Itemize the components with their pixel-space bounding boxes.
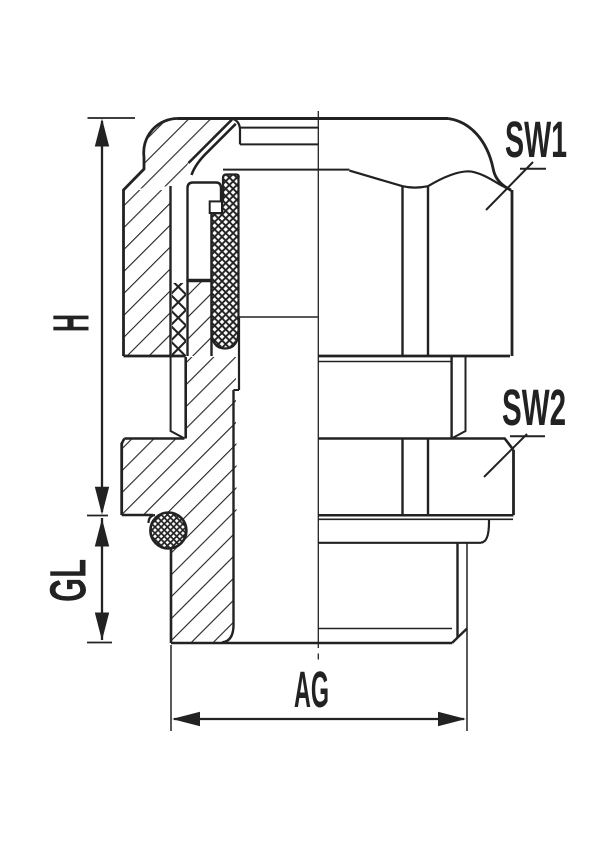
svg-text:H: H [43,314,100,332]
svg-text:SW1: SW1 [505,111,567,168]
svg-text:SW2: SW2 [502,379,566,436]
svg-text:GL: GL [40,559,97,602]
svg-text:AG: AG [294,661,329,718]
